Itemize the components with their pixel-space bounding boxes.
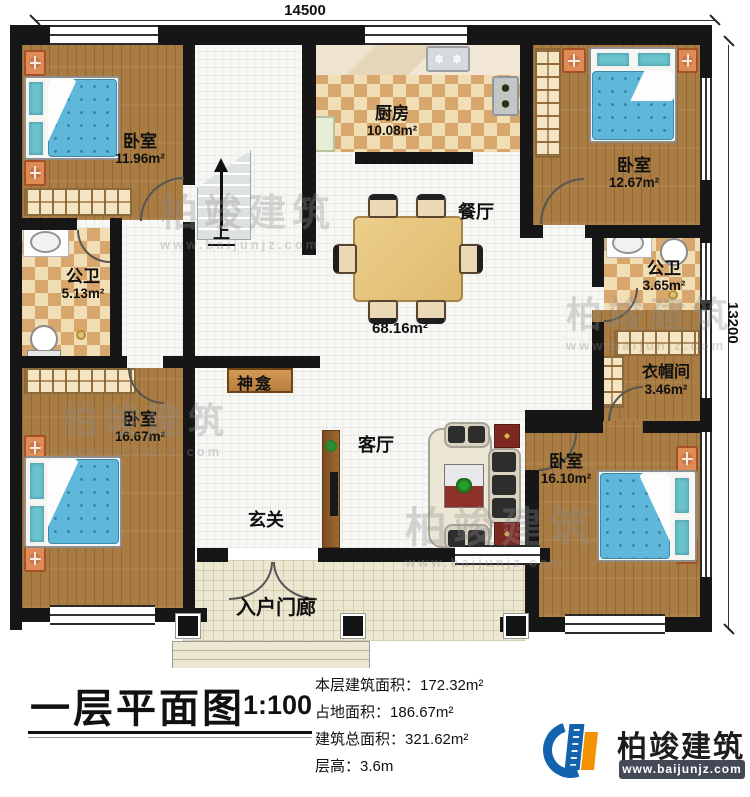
pillow bbox=[27, 80, 45, 117]
label-dining: 餐厅 bbox=[458, 198, 494, 224]
stat-row: 层高：3.6m bbox=[315, 753, 483, 780]
wall-bedroom-tr-bottom bbox=[533, 225, 543, 238]
pillow bbox=[673, 476, 691, 515]
nightstand bbox=[562, 48, 586, 73]
wall-bedroom-br-bottom bbox=[665, 617, 712, 632]
wall-top bbox=[467, 25, 712, 45]
pillow bbox=[673, 518, 691, 557]
plant-on-partition bbox=[325, 440, 337, 452]
room-area: 10.08m² bbox=[342, 123, 442, 138]
wall-bedroom-bl-bottom bbox=[10, 608, 50, 622]
dimension-tick bbox=[723, 35, 734, 46]
bed-tl-sheet bbox=[48, 79, 76, 157]
room-area: 5.13m² bbox=[33, 286, 133, 301]
wall-right bbox=[700, 25, 712, 78]
wardrobe-bl bbox=[24, 368, 136, 394]
window-top-kitchen bbox=[365, 25, 467, 45]
plan-scale: 1:100 bbox=[243, 690, 312, 721]
room-label-kitchen: 厨房 10.08m² bbox=[342, 104, 442, 138]
window-right-bedroom-tr bbox=[700, 78, 712, 180]
wall-hall-south bbox=[540, 548, 550, 562]
room-label-bath-right: 公卫 3.65m² bbox=[614, 259, 714, 293]
room-label-bedroom-bl: 卧室 16.67m² bbox=[90, 410, 190, 444]
stat-label: 占地面积： bbox=[315, 704, 390, 721]
wall-bedroom-br-top bbox=[525, 410, 603, 433]
room-name: 卧室 bbox=[90, 410, 190, 429]
room-label-bedroom-tr: 卧室 12.67m² bbox=[584, 156, 684, 190]
cloakroom-wardrobe-top bbox=[614, 330, 700, 356]
wall-kitchen-bottom bbox=[355, 152, 473, 164]
label-foyer: 玄关 bbox=[248, 506, 284, 532]
dining-table bbox=[353, 216, 463, 302]
sofa-cushion bbox=[492, 498, 516, 518]
stats-block: 本层建筑面积：172.32m² 占地面积：186.67m² 建筑总面积：321.… bbox=[315, 672, 483, 780]
dimension-height-label: 13200 bbox=[724, 302, 741, 362]
wall-cloakroom-left bbox=[592, 322, 604, 421]
kitchen-sink bbox=[426, 46, 470, 72]
wall-bath-left-top bbox=[10, 218, 77, 230]
dimension-width-label: 14500 bbox=[255, 2, 355, 19]
room-area: 11.96m² bbox=[90, 151, 190, 166]
porch-pillar bbox=[176, 614, 200, 638]
room-label-bedroom-br: 卧室 16.10m² bbox=[516, 452, 616, 486]
nightstand bbox=[24, 546, 46, 572]
label-living: 客厅 bbox=[358, 431, 394, 457]
label-hall-area: 68.16m² bbox=[372, 320, 428, 337]
dimension-tick bbox=[723, 623, 734, 634]
room-name: 卧室 bbox=[90, 132, 190, 151]
room-area: 16.10m² bbox=[516, 471, 616, 486]
wall-left bbox=[10, 25, 22, 630]
coffee-table-plant bbox=[456, 478, 472, 493]
sofa-cushion bbox=[492, 452, 516, 472]
stat-value: 172.32m² bbox=[420, 677, 483, 694]
title-block: 一层平面图 1:100 本层建筑面积：172.32m² 占地面积：186.67m… bbox=[0, 668, 750, 797]
wardrobe-tr bbox=[535, 48, 561, 158]
wall-hall-south bbox=[318, 548, 455, 562]
stat-row: 占地面积：186.67m² bbox=[315, 699, 483, 726]
sink-basin bbox=[30, 231, 61, 253]
window-living-south bbox=[455, 545, 540, 565]
porch-pillar bbox=[341, 614, 365, 638]
room-area: 12.67m² bbox=[584, 175, 684, 190]
kitchen-counter bbox=[302, 45, 520, 75]
pillow bbox=[27, 120, 45, 157]
stat-label: 层高： bbox=[315, 758, 360, 775]
side-table bbox=[494, 522, 520, 546]
wall-hall-left-horizontal bbox=[163, 356, 320, 368]
room-name: 公卫 bbox=[614, 259, 714, 278]
wall-hall-south bbox=[197, 548, 228, 562]
porch-pillar bbox=[504, 614, 528, 638]
title-underline-thin bbox=[28, 737, 312, 738]
pillow bbox=[28, 504, 46, 544]
title-underline bbox=[28, 731, 312, 734]
page-title: 一层平面图 bbox=[30, 676, 245, 734]
side-table bbox=[494, 424, 520, 448]
nightstand bbox=[24, 50, 46, 76]
nightstand bbox=[676, 446, 698, 472]
wall-stairs-right bbox=[302, 25, 316, 255]
porch-steps bbox=[172, 641, 370, 669]
stat-value: 3.6m bbox=[360, 758, 393, 775]
wall-kitchen-right bbox=[520, 25, 533, 238]
room-name: 卧室 bbox=[516, 452, 616, 471]
label-porch: 入户门廊 bbox=[236, 591, 316, 620]
room-area: 3.65m² bbox=[614, 278, 714, 293]
dining-chair bbox=[368, 194, 398, 218]
dining-chair bbox=[333, 244, 357, 274]
wall-right bbox=[700, 180, 712, 243]
wall-bedroom-br-left bbox=[525, 470, 539, 617]
stat-label: 本层建筑面积： bbox=[315, 677, 420, 694]
label-up: 上 bbox=[208, 218, 235, 246]
bed-br-sheet bbox=[640, 473, 670, 559]
sofa-cushion bbox=[492, 475, 516, 495]
stat-label: 建筑总面积： bbox=[315, 731, 405, 748]
room-name: 公卫 bbox=[33, 267, 133, 286]
pillow bbox=[595, 51, 631, 68]
window-right-bedroom-br bbox=[700, 432, 712, 577]
company-logo: 柏竣建筑 www.baijunjz.com bbox=[535, 716, 745, 794]
logo-building-icon bbox=[543, 720, 605, 782]
floor-drain bbox=[76, 330, 86, 340]
wall-right bbox=[700, 300, 712, 310]
nightstand bbox=[24, 160, 46, 186]
wall-hall-left-horizontal bbox=[10, 356, 127, 368]
window-bottom-bedroom-br bbox=[565, 614, 665, 634]
window-bottom-bedroom-bl bbox=[50, 605, 155, 625]
wardrobe-tl bbox=[24, 188, 132, 216]
stat-row: 本层建筑面积：172.32m² bbox=[315, 672, 483, 699]
dining-chair bbox=[459, 244, 483, 274]
wall-right bbox=[700, 398, 712, 432]
toilet-bowl bbox=[30, 325, 58, 353]
bed-bl-sheet bbox=[48, 459, 78, 544]
floor-plan-canvas: 卧室 11.96m² 厨房 10.08m² 卧室 12.67m² 公卫 5.13… bbox=[0, 0, 750, 797]
logo-url-bar: www.baijunjz.com bbox=[619, 760, 745, 779]
pillow bbox=[28, 461, 46, 501]
dimension-line-top bbox=[35, 20, 715, 21]
room-name: 厨房 bbox=[342, 104, 442, 123]
room-name: 衣帽间 bbox=[616, 364, 716, 382]
logo-url: www.baijunjz.com bbox=[622, 762, 742, 776]
room-label-cloakroom: 衣帽间 3.46m² bbox=[616, 364, 716, 397]
sofa-cushion bbox=[448, 426, 465, 443]
room-area: 16.67m² bbox=[90, 429, 190, 444]
stove bbox=[492, 76, 519, 116]
dining-chair bbox=[416, 194, 446, 218]
pillow bbox=[636, 51, 672, 68]
wall-cloakroom-bottom bbox=[643, 421, 700, 433]
room-label-bath-left: 公卫 5.13m² bbox=[33, 267, 133, 301]
stat-value: 321.62m² bbox=[405, 731, 468, 748]
sofa-cushion bbox=[468, 426, 485, 443]
stat-value: 186.67m² bbox=[390, 704, 453, 721]
room-name: 卧室 bbox=[584, 156, 684, 175]
tv-screen bbox=[330, 472, 338, 516]
nightstand bbox=[677, 48, 698, 73]
window-top-bedroom-tl bbox=[50, 25, 158, 45]
label-shrine: 神龛 bbox=[237, 370, 273, 394]
room-area: 3.46m² bbox=[616, 382, 716, 397]
bed-tr-sheet bbox=[592, 71, 674, 101]
wall-bath-right-left bbox=[592, 225, 604, 287]
logo-tower-orange bbox=[581, 732, 598, 770]
room-label-bedroom-tl: 卧室 11.96m² bbox=[90, 132, 190, 166]
stat-row: 建筑总面积：321.62m² bbox=[315, 726, 483, 753]
stairs-arrow-head bbox=[214, 158, 228, 172]
